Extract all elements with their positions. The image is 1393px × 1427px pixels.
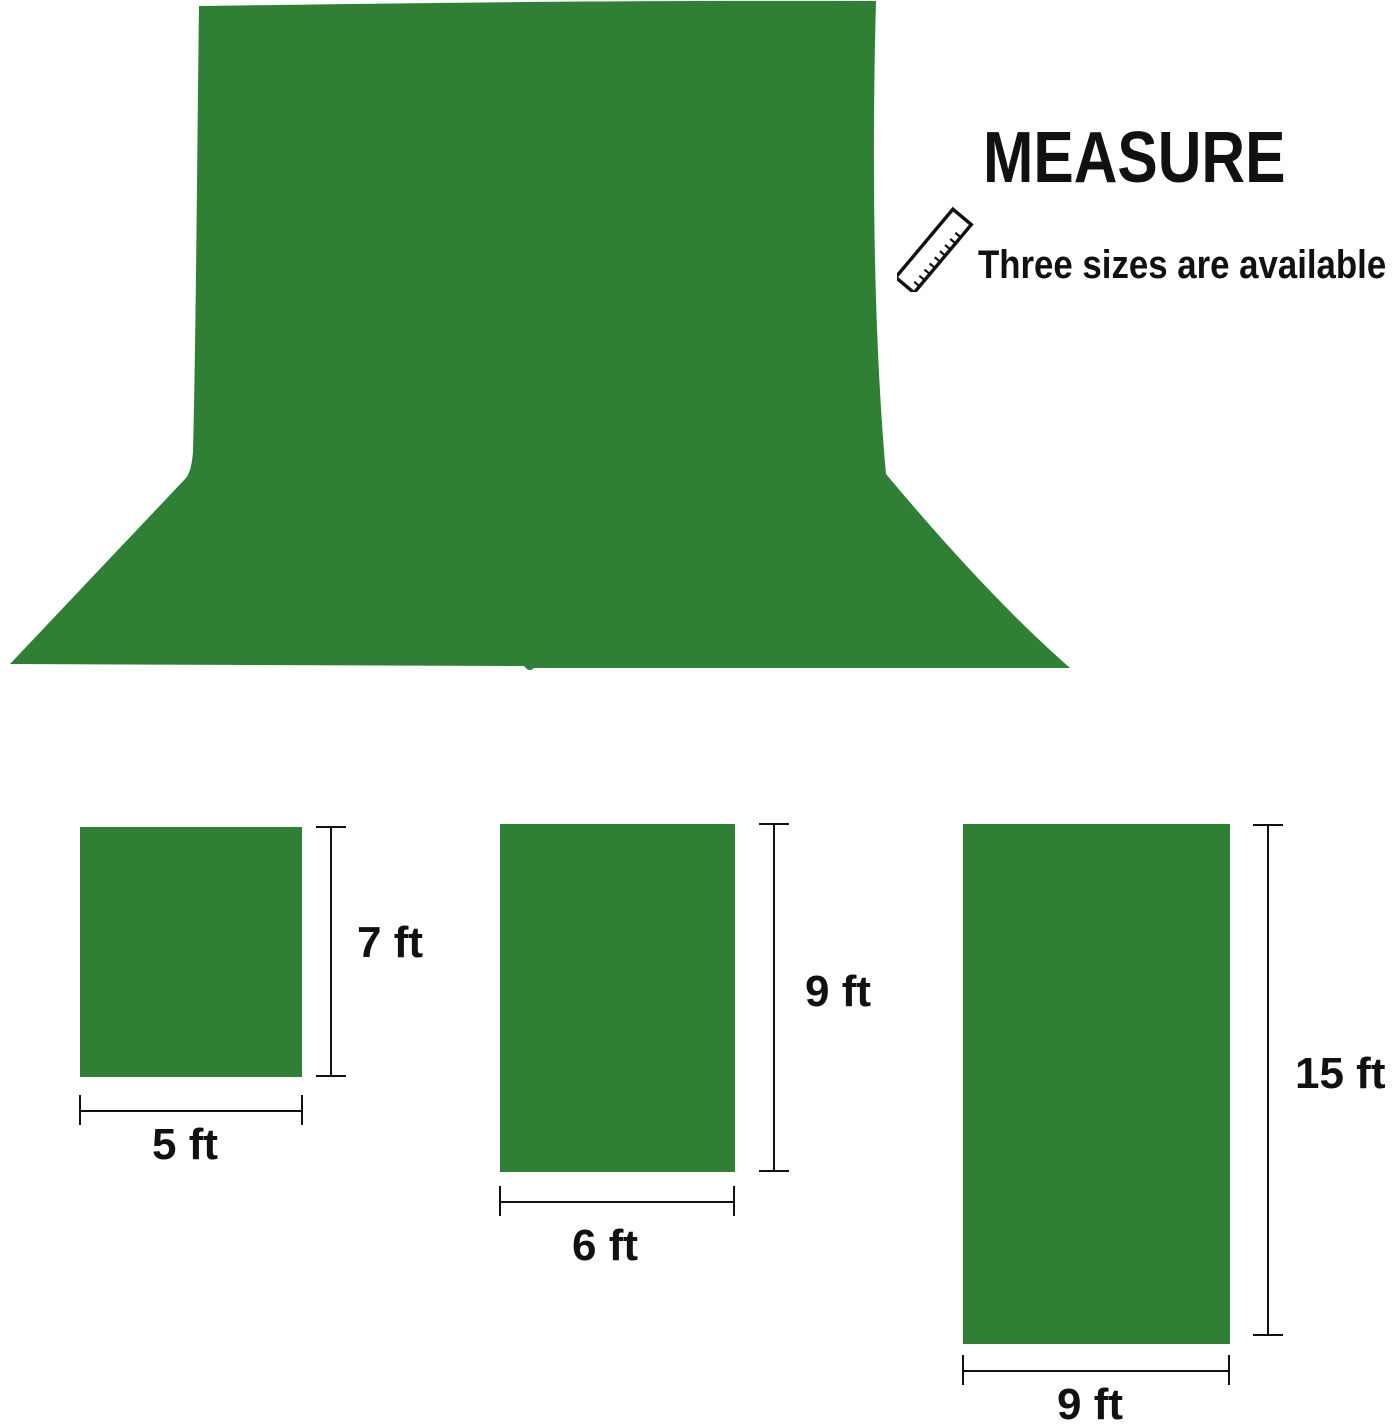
width-label: 9 ft: [1057, 1383, 1123, 1427]
green-screen-swatch: [80, 827, 302, 1077]
width-dimension-line: [500, 1201, 735, 1203]
height-dimension-line: [330, 827, 332, 1077]
dimension-end-cap: [733, 1186, 735, 1216]
dimension-end-cap: [1253, 824, 1283, 826]
page-title: MEASURE: [983, 122, 1285, 194]
backdrop-size-infographic: MEASURE Three sizes are available 7 ft: [0, 0, 1393, 1427]
height-label: 15 ft: [1295, 1052, 1385, 1096]
green-backdrop-drape: [0, 0, 1393, 700]
dimension-end-cap: [759, 1170, 789, 1172]
dimension-end-cap: [316, 1075, 346, 1077]
width-dimension-line: [963, 1370, 1230, 1372]
dimension-end-cap: [1253, 1334, 1283, 1336]
dimension-end-cap: [1228, 1355, 1230, 1385]
height-dimension-line: [773, 824, 775, 1172]
dimension-end-cap: [301, 1095, 303, 1125]
width-dimension-line: [80, 1110, 302, 1112]
width-label: 6 ft: [572, 1224, 638, 1268]
dimension-end-cap: [79, 1095, 81, 1125]
dimension-end-cap: [316, 826, 346, 828]
green-screen-swatch: [963, 824, 1230, 1344]
height-label: 9 ft: [805, 970, 871, 1014]
dimension-end-cap: [499, 1186, 501, 1216]
ruler-icon: [897, 206, 975, 292]
width-label: 5 ft: [152, 1123, 218, 1167]
dimension-end-cap: [962, 1355, 964, 1385]
dimension-end-cap: [759, 823, 789, 825]
subtitle-text: Three sizes are available: [978, 245, 1386, 285]
height-dimension-line: [1267, 825, 1269, 1336]
green-screen-swatch: [500, 824, 735, 1172]
height-label: 7 ft: [357, 921, 423, 965]
